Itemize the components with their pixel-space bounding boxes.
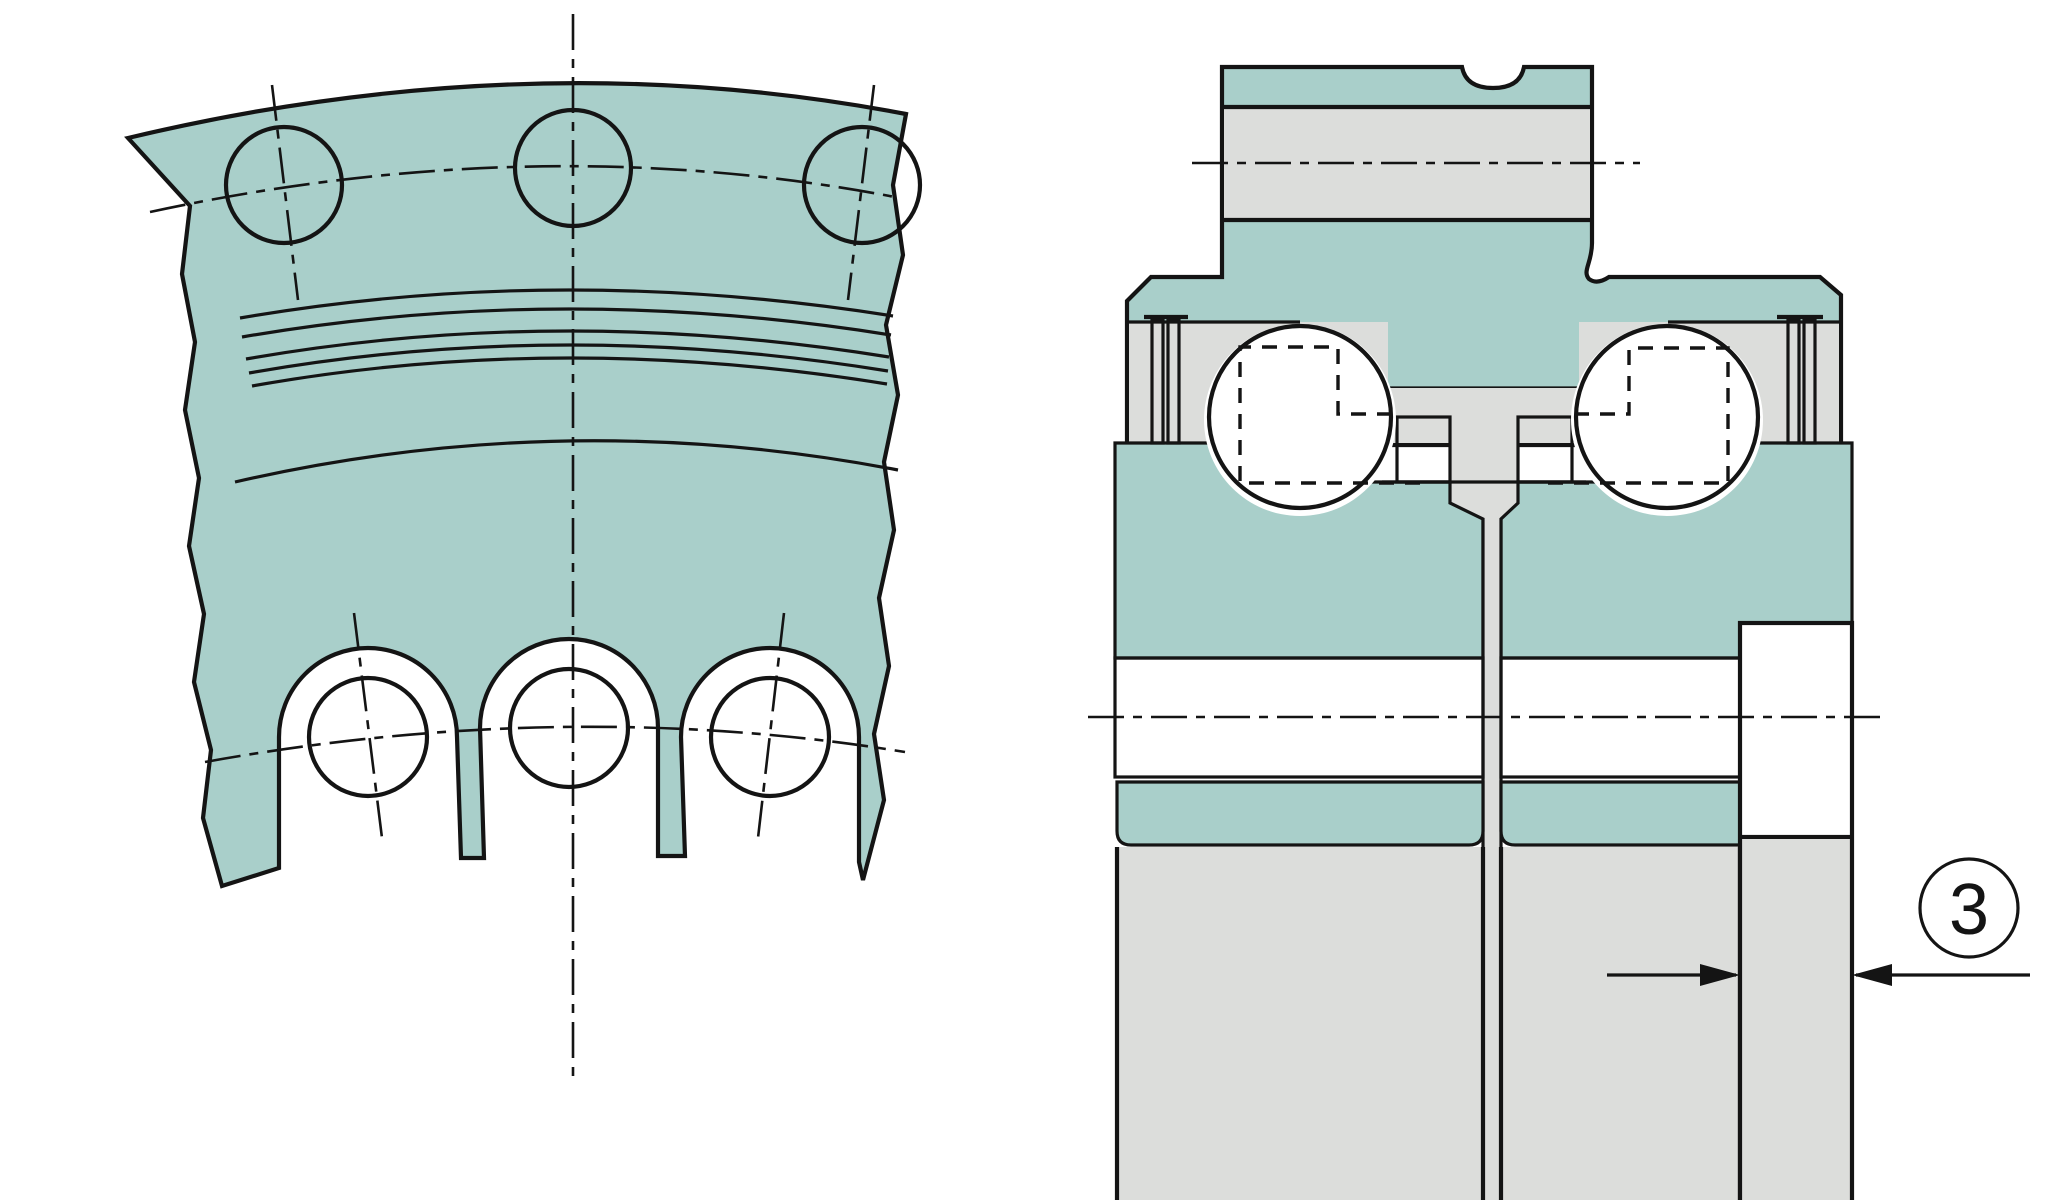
collar-strip-right	[1501, 782, 1740, 845]
bearing-unit-technical-drawing: 3	[0, 0, 2070, 1200]
dimension-arrow-right	[1852, 964, 1892, 986]
bearing-section-view: 3	[1088, 67, 2030, 1200]
shaft-right	[1501, 847, 1740, 1200]
spacer-ring-upper	[1740, 623, 1852, 837]
bearing-ball-right	[1571, 324, 1763, 516]
balloon-label: 3	[1949, 870, 1989, 950]
drawing-canvas: 3	[0, 0, 2070, 1200]
collar-strip-left	[1117, 782, 1483, 845]
spacer-ring-lower	[1740, 839, 1852, 1200]
bearing-ball-left	[1204, 324, 1396, 516]
flange-segment-body	[128, 83, 906, 886]
shaft-left	[1117, 847, 1483, 1200]
flange-front-view	[128, 14, 920, 1085]
outer-ring-center-rib	[1388, 300, 1579, 387]
